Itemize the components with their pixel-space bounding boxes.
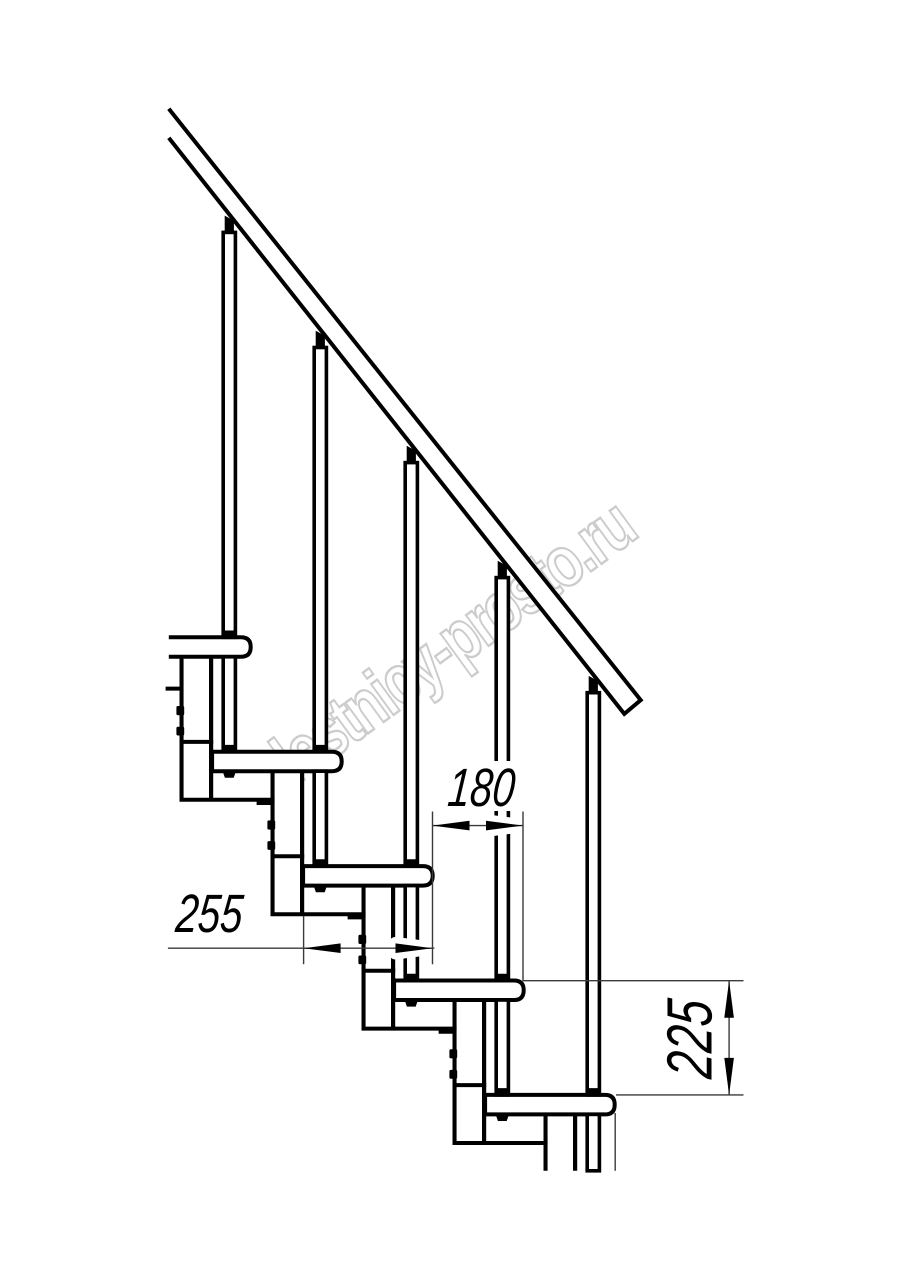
svg-text:225: 225 bbox=[653, 996, 725, 1082]
svg-text:255: 255 bbox=[173, 884, 246, 944]
svg-text:180: 180 bbox=[446, 758, 519, 818]
